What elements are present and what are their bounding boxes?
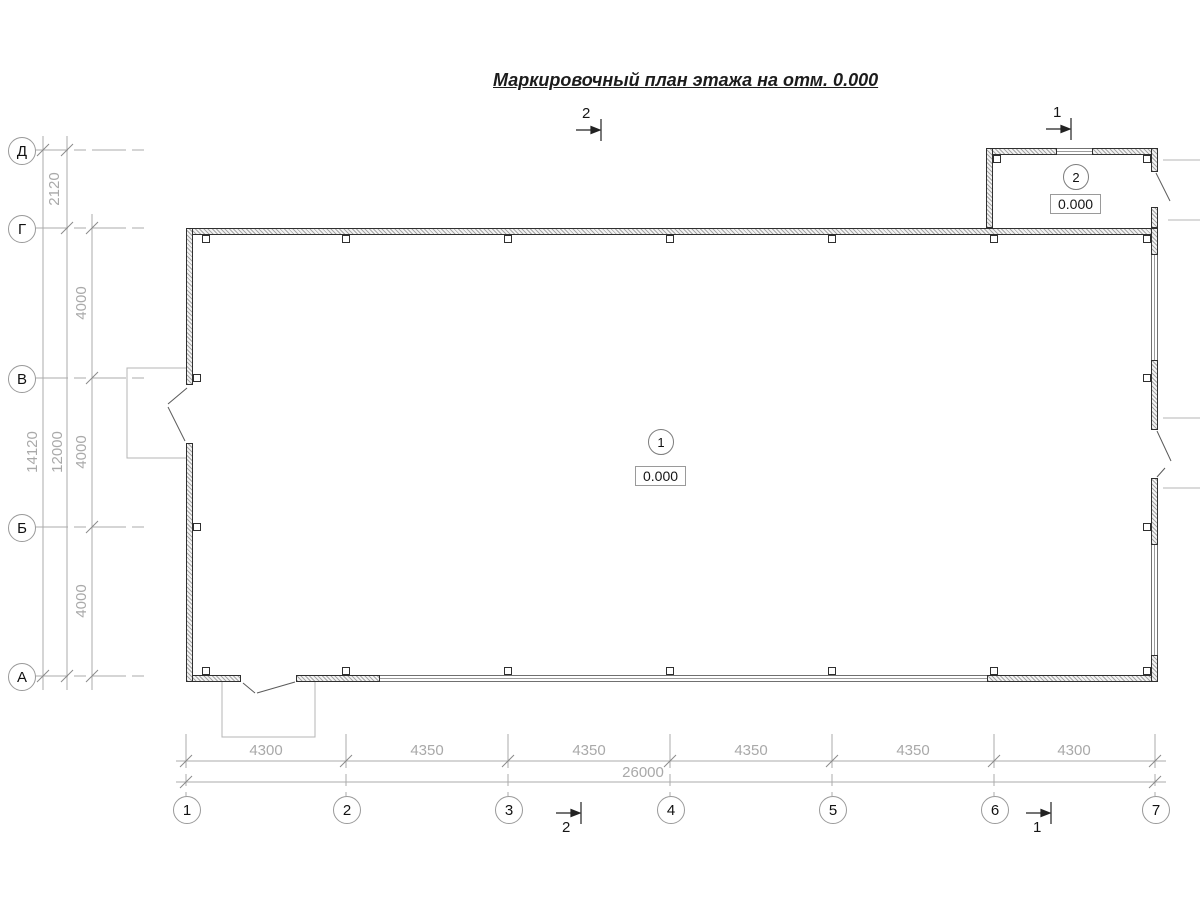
dim-span-2-3: 4350 <box>397 742 457 760</box>
axis-col-7: 7 <box>1142 796 1170 824</box>
dim-span-5-6: 4350 <box>883 742 943 760</box>
column-mark <box>828 667 836 675</box>
column-mark <box>1143 523 1151 531</box>
column-mark <box>202 235 210 243</box>
wall-right-2 <box>1151 360 1158 430</box>
axis-label: Г <box>18 221 26 238</box>
column-mark <box>993 155 1001 163</box>
axis-label: 2 <box>343 802 351 819</box>
room-number-label: 1 <box>657 435 664 450</box>
axis-col-6: 6 <box>981 796 1009 824</box>
leader-lines <box>1163 160 1200 488</box>
column-mark <box>1143 667 1151 675</box>
axis-row-b: Б <box>8 514 36 542</box>
wall-bottom-mid <box>296 675 380 682</box>
axis-col-3: 3 <box>495 796 523 824</box>
dim-vertical-total: 14120 <box>24 422 42 482</box>
axis-col-1: 1 <box>173 796 201 824</box>
section-2-label-bottom: 2 <box>562 820 570 836</box>
column-mark <box>202 667 210 675</box>
axis-label: 3 <box>505 802 513 819</box>
dim-span-d-g: 2120 <box>46 159 64 219</box>
wall-annex-right-upper <box>1151 148 1158 172</box>
axis-label: 1 <box>183 802 191 819</box>
column-mark <box>828 235 836 243</box>
section-1-label-top: 1 <box>1053 105 1061 121</box>
section-2-label-top: 2 <box>582 106 590 122</box>
axis-row-a: А <box>8 663 36 691</box>
axis-label: 4 <box>667 802 675 819</box>
column-mark <box>666 667 674 675</box>
window-band-bottom <box>380 675 987 682</box>
column-mark <box>666 235 674 243</box>
dim-span-4-5: 4350 <box>721 742 781 760</box>
dim-span-6-7: 4300 <box>1044 742 1104 760</box>
wall-top-main <box>186 228 1158 235</box>
axis-label: 7 <box>1152 802 1160 819</box>
room-1-number: 1 <box>648 429 674 455</box>
dim-span-1-2: 4300 <box>236 742 296 760</box>
wall-right-3 <box>1151 478 1158 545</box>
wall-right-1 <box>1151 228 1158 255</box>
axis-col-4: 4 <box>657 796 685 824</box>
room-2-number: 2 <box>1063 164 1089 190</box>
dim-horizontal-total: 26000 <box>613 764 673 782</box>
dim-vertical-subtotal: 12000 <box>49 422 67 482</box>
column-mark <box>342 235 350 243</box>
section-1-label-bottom: 1 <box>1033 820 1041 836</box>
axis-col-5: 5 <box>819 796 847 824</box>
column-mark <box>193 374 201 382</box>
axis-row-v: В <box>8 365 36 393</box>
column-mark <box>990 667 998 675</box>
room-1-elevation: 0.000 <box>635 466 686 486</box>
axis-row-d: Д <box>8 137 36 165</box>
floor-plan-drawing: Маркировочный план этажа на отм. 0.000 <box>0 0 1200 900</box>
room-2-elevation: 0.000 <box>1050 194 1101 214</box>
wall-annex-top-left <box>986 148 1057 155</box>
axis-label: 5 <box>829 802 837 819</box>
plan-linework <box>0 0 1200 900</box>
dim-span-v-b: 4000 <box>73 422 91 482</box>
axis-col-2: 2 <box>333 796 361 824</box>
dim-span-g-v: 4000 <box>73 273 91 333</box>
column-mark <box>1143 235 1151 243</box>
wall-left-lower <box>186 443 193 682</box>
room-number-label: 2 <box>1072 170 1079 185</box>
wall-right-4 <box>1151 655 1158 682</box>
column-mark <box>1143 374 1151 382</box>
window-annex-top <box>1057 148 1092 155</box>
window-right-upper <box>1151 255 1158 360</box>
dim-span-3-4: 4350 <box>559 742 619 760</box>
column-mark <box>193 523 201 531</box>
axis-label: А <box>17 669 27 686</box>
wall-annex-right-lower <box>1151 207 1158 228</box>
axis-label: В <box>17 371 27 388</box>
axis-row-g: Г <box>8 215 36 243</box>
window-right-lower <box>1151 545 1158 655</box>
wall-bottom-left <box>186 675 241 682</box>
axis-stub-lines <box>34 150 1155 796</box>
wall-annex-left <box>986 148 993 228</box>
axis-label: Б <box>17 520 27 537</box>
dim-span-b-a: 4000 <box>73 571 91 631</box>
wall-annex-top-right <box>1092 148 1158 155</box>
axis-label: Д <box>17 143 27 160</box>
wall-bottom-right <box>987 675 1158 682</box>
axis-label: 6 <box>991 802 999 819</box>
column-mark <box>1143 155 1151 163</box>
column-mark <box>504 235 512 243</box>
column-mark <box>504 667 512 675</box>
section-arrows <box>556 118 1071 824</box>
column-mark <box>342 667 350 675</box>
wall-left-upper <box>186 228 193 385</box>
column-mark <box>990 235 998 243</box>
